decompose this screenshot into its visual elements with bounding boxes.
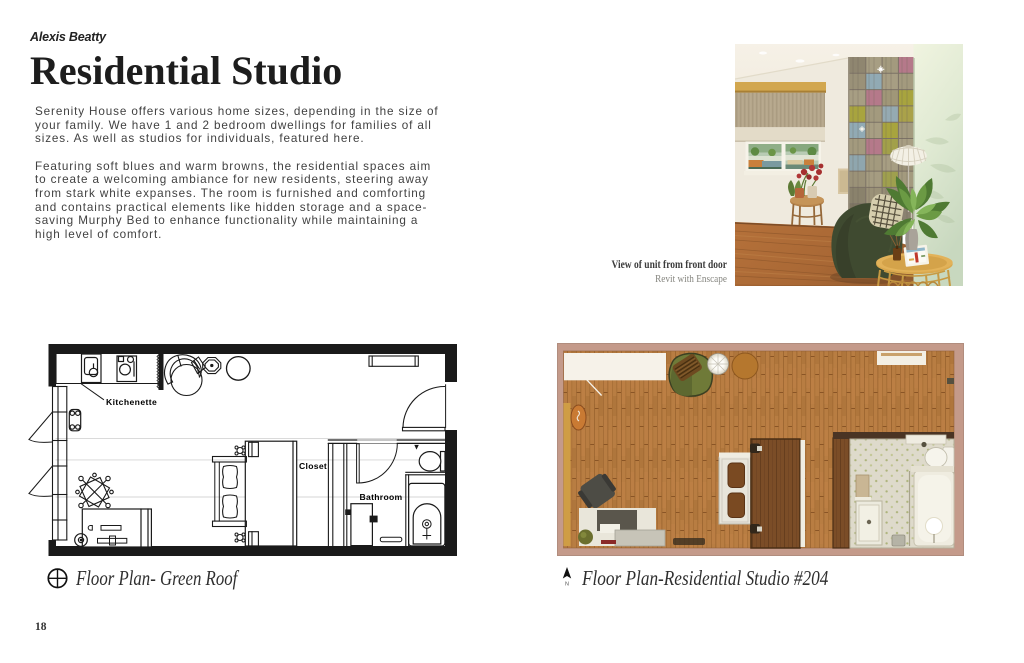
svg-text:Bathroom: Bathroom: [360, 492, 403, 502]
svg-text:Closet: Closet: [299, 461, 327, 471]
svg-text:Kitchenette: Kitchenette: [106, 397, 157, 407]
svg-text:N: N: [565, 582, 569, 588]
